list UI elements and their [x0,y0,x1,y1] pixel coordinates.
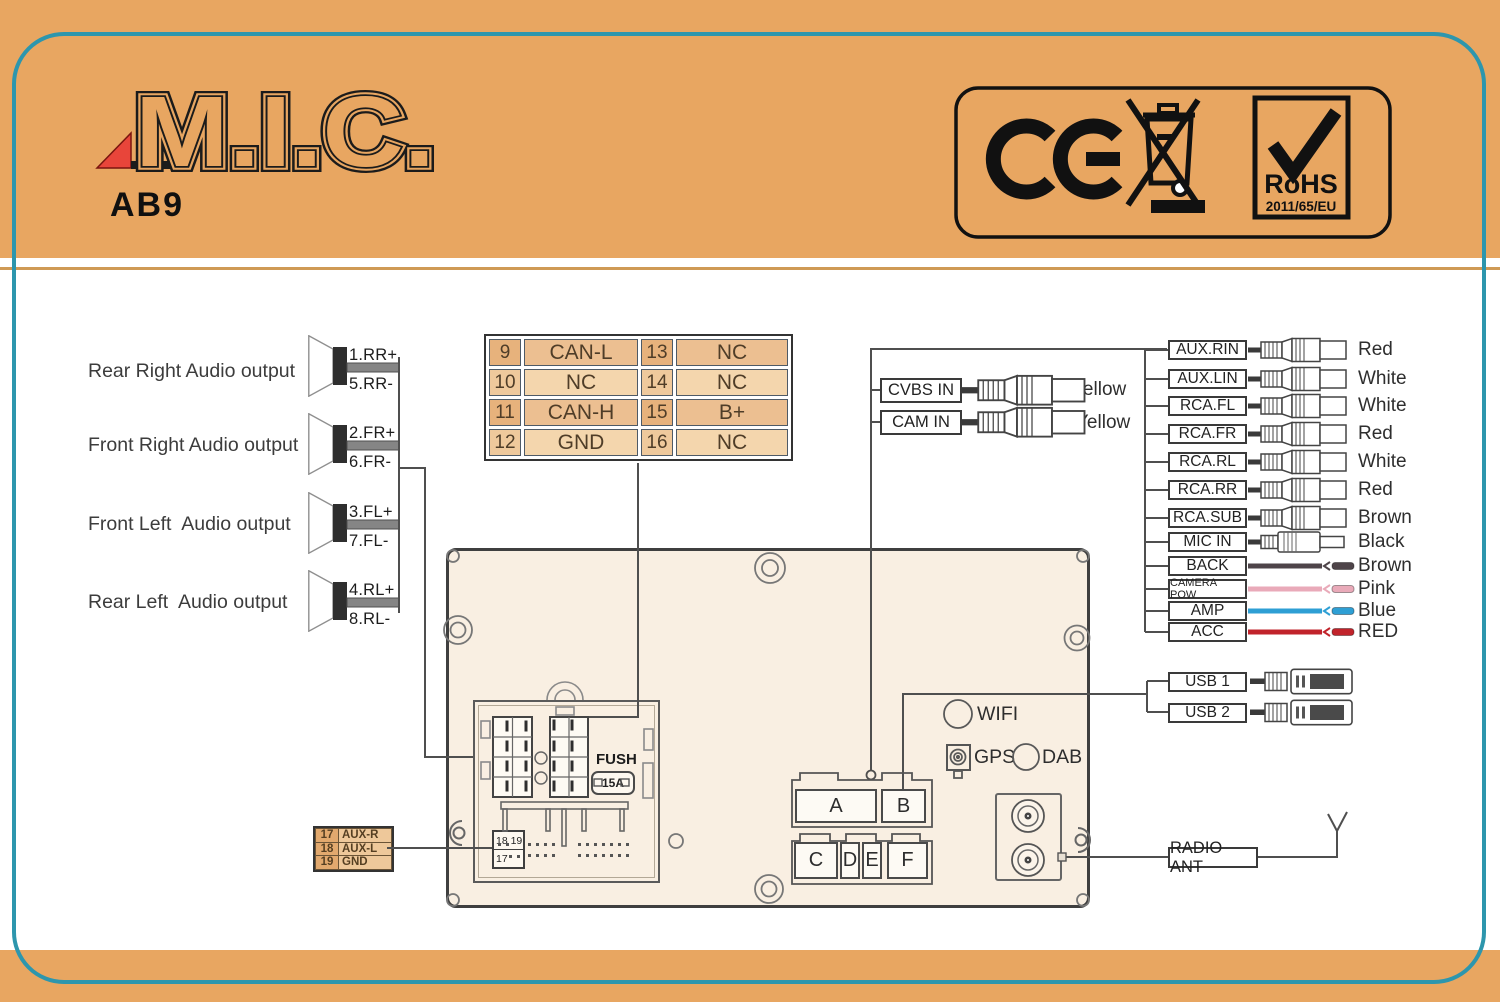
pin-table: 9 CAN-L 13 NC 10 NC 14 NC 11 CAN-H 15 B+… [484,334,793,461]
port-box: ACC [1168,622,1247,642]
iso-pin-label: 1 [497,722,503,734]
wire-color-name: White [1358,368,1407,390]
wire-color-name: Red [1358,423,1393,445]
speaker-pin-minus: 5.RR- [349,375,393,394]
rohs-text: RoHS [1264,169,1338,199]
connector-f: F [887,842,928,879]
wire-color-name: Brown [1358,555,1412,577]
pin-number: 12 [489,429,521,456]
port-box: RCA.RR [1168,480,1247,500]
speaker-label: Front Left Audio output [88,513,291,536]
pin-value: CAN-L [524,339,638,366]
plug-color-name: Yellow [1076,412,1130,434]
wire-color-name: White [1358,451,1407,473]
port-box: CAMERA POW [1168,579,1247,599]
wire-color-name: White [1358,395,1407,417]
iso-pin-label: 12 [555,781,567,793]
pin-value: NC [676,339,788,366]
aux-connector-block: 18 19 17 [492,830,525,869]
weee-bin-icon [1128,100,1205,213]
aux-pin-value: GND [339,856,391,869]
radio-ant-box: RADIO ANT [1168,847,1258,868]
logo-triangle-icon [97,133,131,168]
rohs-mark-icon: RoHS 2011/65/EU [1255,98,1348,217]
pin-value: CAN-H [524,399,638,426]
pin-value: B+ [676,399,788,426]
pin-number: 9 [489,339,521,366]
fuse-label: FUSH [596,751,637,768]
connector-b: B [881,789,926,823]
ce-mark-icon: CE [993,126,1120,192]
certification-badge: CE RoHS 2011/65/EU [953,85,1393,240]
speaker-pin-plus: 1.RR+ [349,346,397,365]
wire-color-name: Black [1358,531,1404,553]
plug-color-name: Yellow [1072,379,1126,401]
dab-label: DAB [1042,746,1082,769]
pin-number: 14 [641,369,673,396]
svg-text:CE: CE [1013,157,1027,168]
iso-pin-label: 13 [574,722,586,734]
model-number: AB9 [110,186,184,225]
speaker-pin-plus: 2.FR+ [349,424,395,443]
iso-pin-label: 8 [516,781,522,793]
pin-value: GND [524,429,638,456]
speaker-pin-minus: 7.FL- [349,532,389,551]
port-box: BACK [1168,556,1247,576]
aux-block-top-pins: 18 19 [494,832,523,849]
aux-pin-number: 19 [316,856,338,869]
aux-pin-number: 18 [316,843,338,856]
pin-value: NC [524,369,638,396]
wiring-diagram-page: M.I.C. M.I.C. M.I.C. M.I.C. AB9 CE [0,0,1500,1002]
port-box: RCA.SUB [1168,508,1247,528]
aux-block-bottom-pin: 17 [494,849,523,867]
cvbs-in-box: CVBS IN [880,378,962,403]
wire-color-name: Red [1358,339,1393,361]
iso-pin-label: 9 [558,722,564,734]
speaker-pin-minus: 8.RL- [349,610,390,629]
wire-color-name: RED [1358,621,1398,643]
speaker-pin-plus: 4.RL+ [349,581,395,600]
connector-d: D [840,842,860,879]
fuse-15a: 15A [591,771,635,795]
usb1-box: USB 1 [1168,672,1247,692]
speaker-label: Rear Right Audio output [88,360,295,383]
port-box: RCA.RL [1168,452,1247,472]
wifi-label: WIFI [977,703,1018,726]
pin-number: 13 [641,339,673,366]
connector-e: E [862,842,882,879]
port-box: AMP [1168,601,1247,621]
connector-a: A [795,789,877,823]
aux-pin-value: AUX-L [339,843,391,856]
aux-pin-number: 17 [316,829,338,842]
port-box: RCA.FL [1168,396,1247,416]
wire-color-name: Blue [1358,600,1396,622]
gps-connector [946,744,971,771]
wire-color-name: Brown [1358,507,1412,529]
aux-table: 17 AUX-R 18 AUX-L 19 GND [313,826,394,872]
iso-pin-label: 5 [516,722,522,734]
connector-c: C [794,842,838,879]
wire-color-name: Pink [1358,578,1395,600]
aux-pin-value: AUX-R [339,829,391,842]
antenna-housing [995,793,1062,881]
rohs-directive-text: 2011/65/EU [1266,199,1337,214]
port-box: AUX.LIN [1168,369,1247,389]
speaker-pin-minus: 6.FR- [349,453,391,472]
port-box: MIC IN [1168,532,1247,552]
pin-number: 11 [489,399,521,426]
speaker-label: Front Right Audio output [88,434,298,457]
pin-value: NC [676,429,788,456]
wire-color-name: Red [1358,479,1393,501]
speaker-label: Rear Left Audio output [88,591,287,614]
pin-number: 10 [489,369,521,396]
iso-pin-label: 4 [497,781,503,793]
port-box: RCA.FR [1168,424,1247,444]
cam-in-box: CAM IN [880,410,962,435]
pin-value: NC [676,369,788,396]
speaker-pin-plus: 3.FL+ [349,503,393,522]
port-box: AUX.RIN [1168,340,1247,360]
pin-number: 15 [641,399,673,426]
iso-pin-label: 16 [573,781,585,793]
pin-number: 16 [641,429,673,456]
brand-text: M.I.C. [135,80,435,188]
gps-label: GPS [974,746,1015,769]
usb2-box: USB 2 [1168,703,1247,723]
